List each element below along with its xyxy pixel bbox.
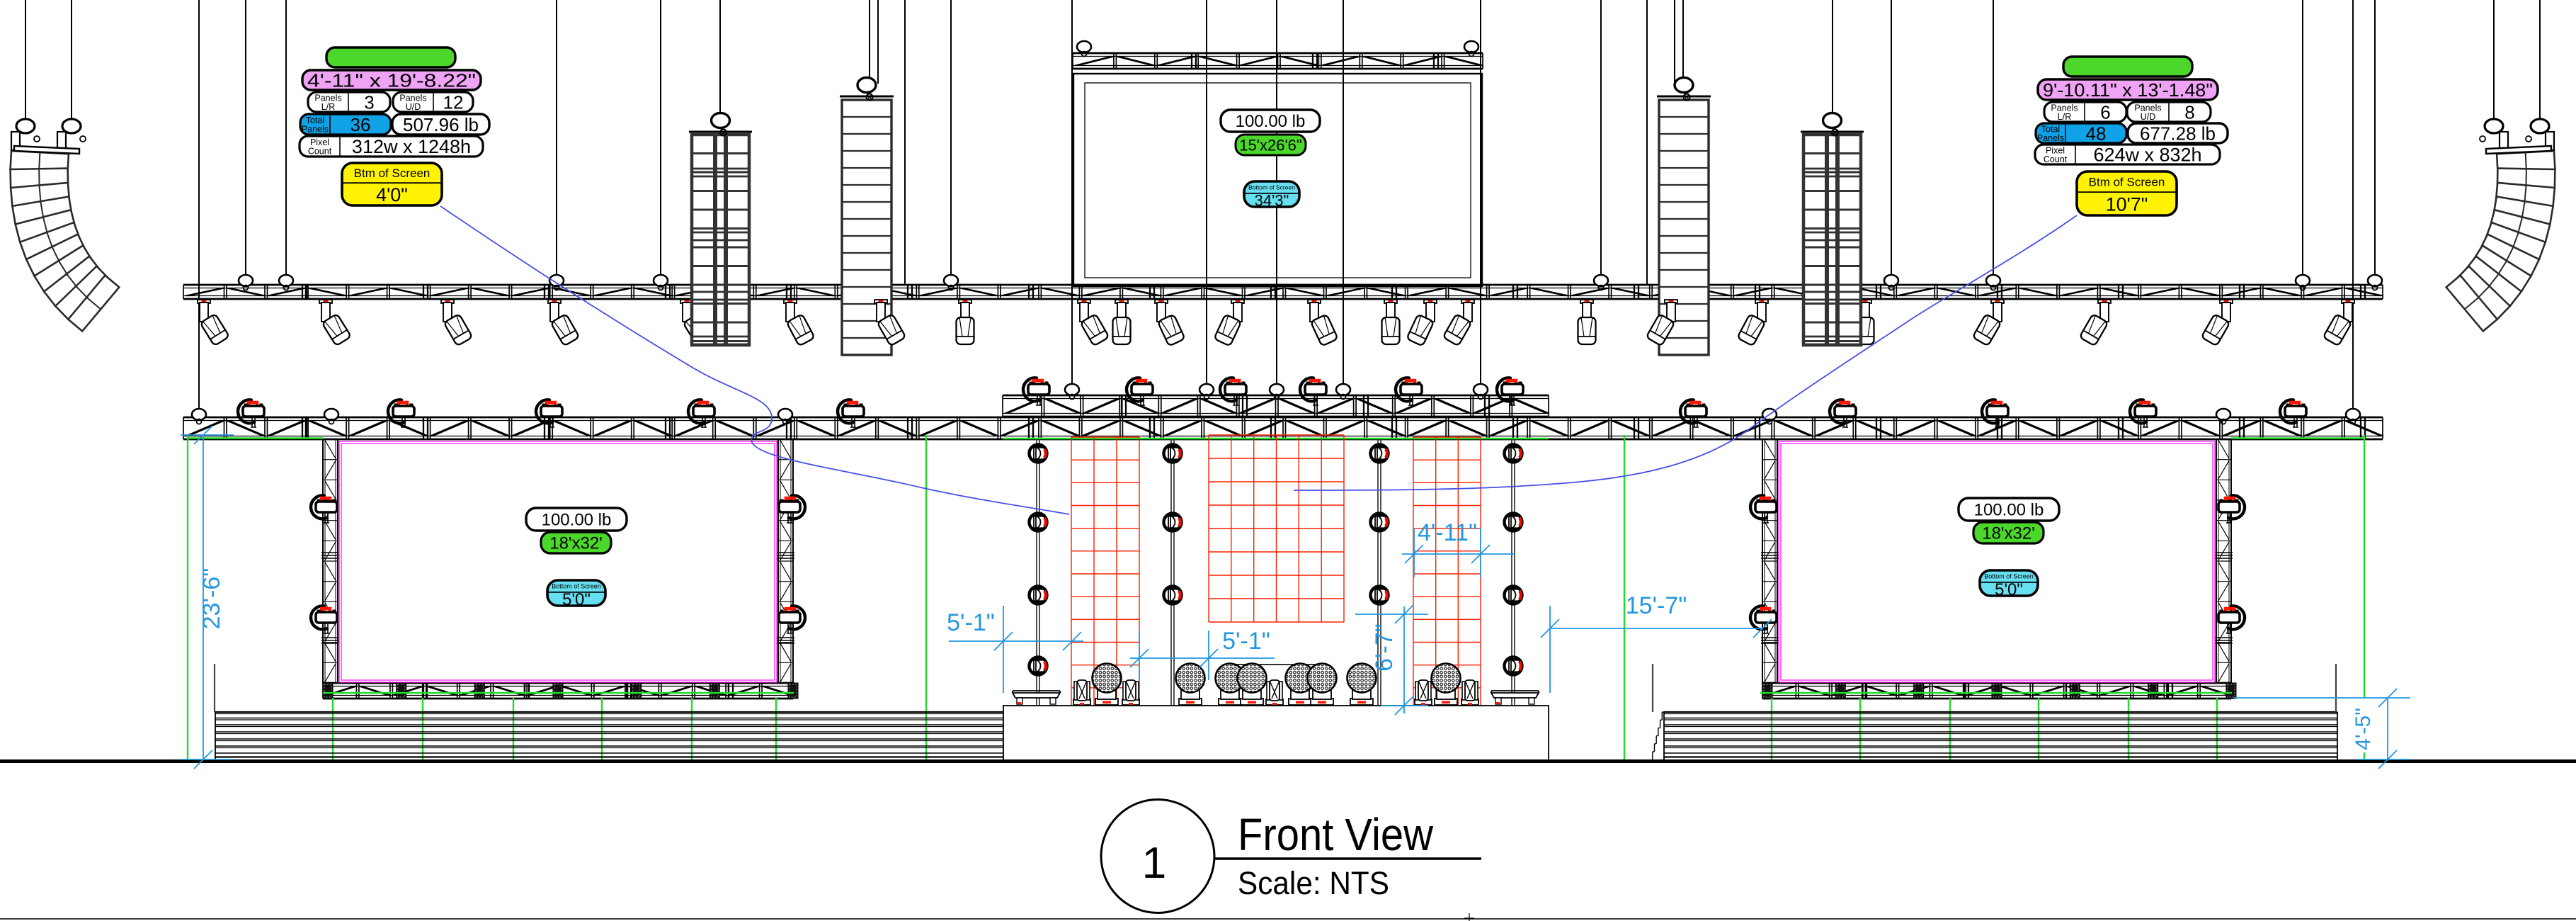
svg-text:Count: Count <box>308 147 332 157</box>
svg-text:Front View: Front View <box>1238 809 1434 860</box>
svg-text:Scale: NTS: Scale: NTS <box>1238 865 1389 901</box>
svg-text:15'-7": 15'-7" <box>1626 592 1687 619</box>
svg-text:8: 8 <box>2184 101 2194 123</box>
svg-text:6'-7": 6'-7" <box>1371 623 1398 672</box>
svg-text:Count: Count <box>2044 154 2068 164</box>
svg-text:12: 12 <box>443 91 464 113</box>
svg-text:L/R: L/R <box>321 102 335 112</box>
svg-text:6: 6 <box>2100 101 2110 123</box>
svg-text:9'-10.11" x 13'-1.48": 9'-10.11" x 13'-1.48" <box>2043 79 2213 101</box>
svg-text:624w x 832h: 624w x 832h <box>2093 145 2201 166</box>
svg-text:Bottom of Screen: Bottom of Screen <box>1248 184 1295 191</box>
svg-text:34'3": 34'3" <box>1255 191 1289 209</box>
svg-text:5'-1": 5'-1" <box>1222 628 1270 655</box>
svg-text:Bottom of Screen: Bottom of Screen <box>552 583 601 590</box>
svg-text:4'0": 4'0" <box>376 184 408 205</box>
svg-text:677.28 lb: 677.28 lb <box>2140 123 2216 144</box>
svg-text:18'x32': 18'x32' <box>549 534 603 553</box>
svg-text:15'x26'6": 15'x26'6" <box>1239 136 1301 154</box>
svg-text:L/R: L/R <box>2058 112 2071 122</box>
svg-text:10'7": 10'7" <box>2106 193 2148 215</box>
svg-text:5'-1": 5'-1" <box>947 609 995 636</box>
svg-text:4'-11": 4'-11" <box>1418 519 1477 546</box>
svg-text:23'-6": 23'-6" <box>198 568 225 630</box>
svg-text:100.00 lb: 100.00 lb <box>542 511 612 530</box>
svg-text:Btm of Screen: Btm of Screen <box>354 166 431 180</box>
svg-text:U/D: U/D <box>2141 112 2156 122</box>
svg-text:100.00 lb: 100.00 lb <box>1974 501 2044 520</box>
svg-text:5'0": 5'0" <box>1995 580 2023 599</box>
svg-text:Bottom of Screen: Bottom of Screen <box>1984 573 2034 580</box>
svg-text:36: 36 <box>351 114 371 135</box>
svg-text:Panels: Panels <box>302 125 329 135</box>
svg-text:5'0": 5'0" <box>562 590 591 609</box>
svg-text:18'x32': 18'x32' <box>1982 524 2035 543</box>
svg-text:312w x 1248h: 312w x 1248h <box>352 136 471 157</box>
svg-text:Btm of Screen: Btm of Screen <box>2089 176 2165 189</box>
svg-text:100.00 lb: 100.00 lb <box>1236 112 1306 131</box>
svg-text:48: 48 <box>2086 123 2107 144</box>
svg-text:1: 1 <box>1142 839 1166 888</box>
svg-text:4'-11" x 19'-8.22": 4'-11" x 19'-8.22" <box>307 69 476 91</box>
svg-text:507.96 lb: 507.96 lb <box>403 114 479 135</box>
svg-text:Panels: Panels <box>2037 133 2064 143</box>
svg-text:U/D: U/D <box>406 102 421 112</box>
svg-text:3: 3 <box>364 91 374 113</box>
svg-text:4'-5": 4'-5" <box>2352 708 2375 750</box>
